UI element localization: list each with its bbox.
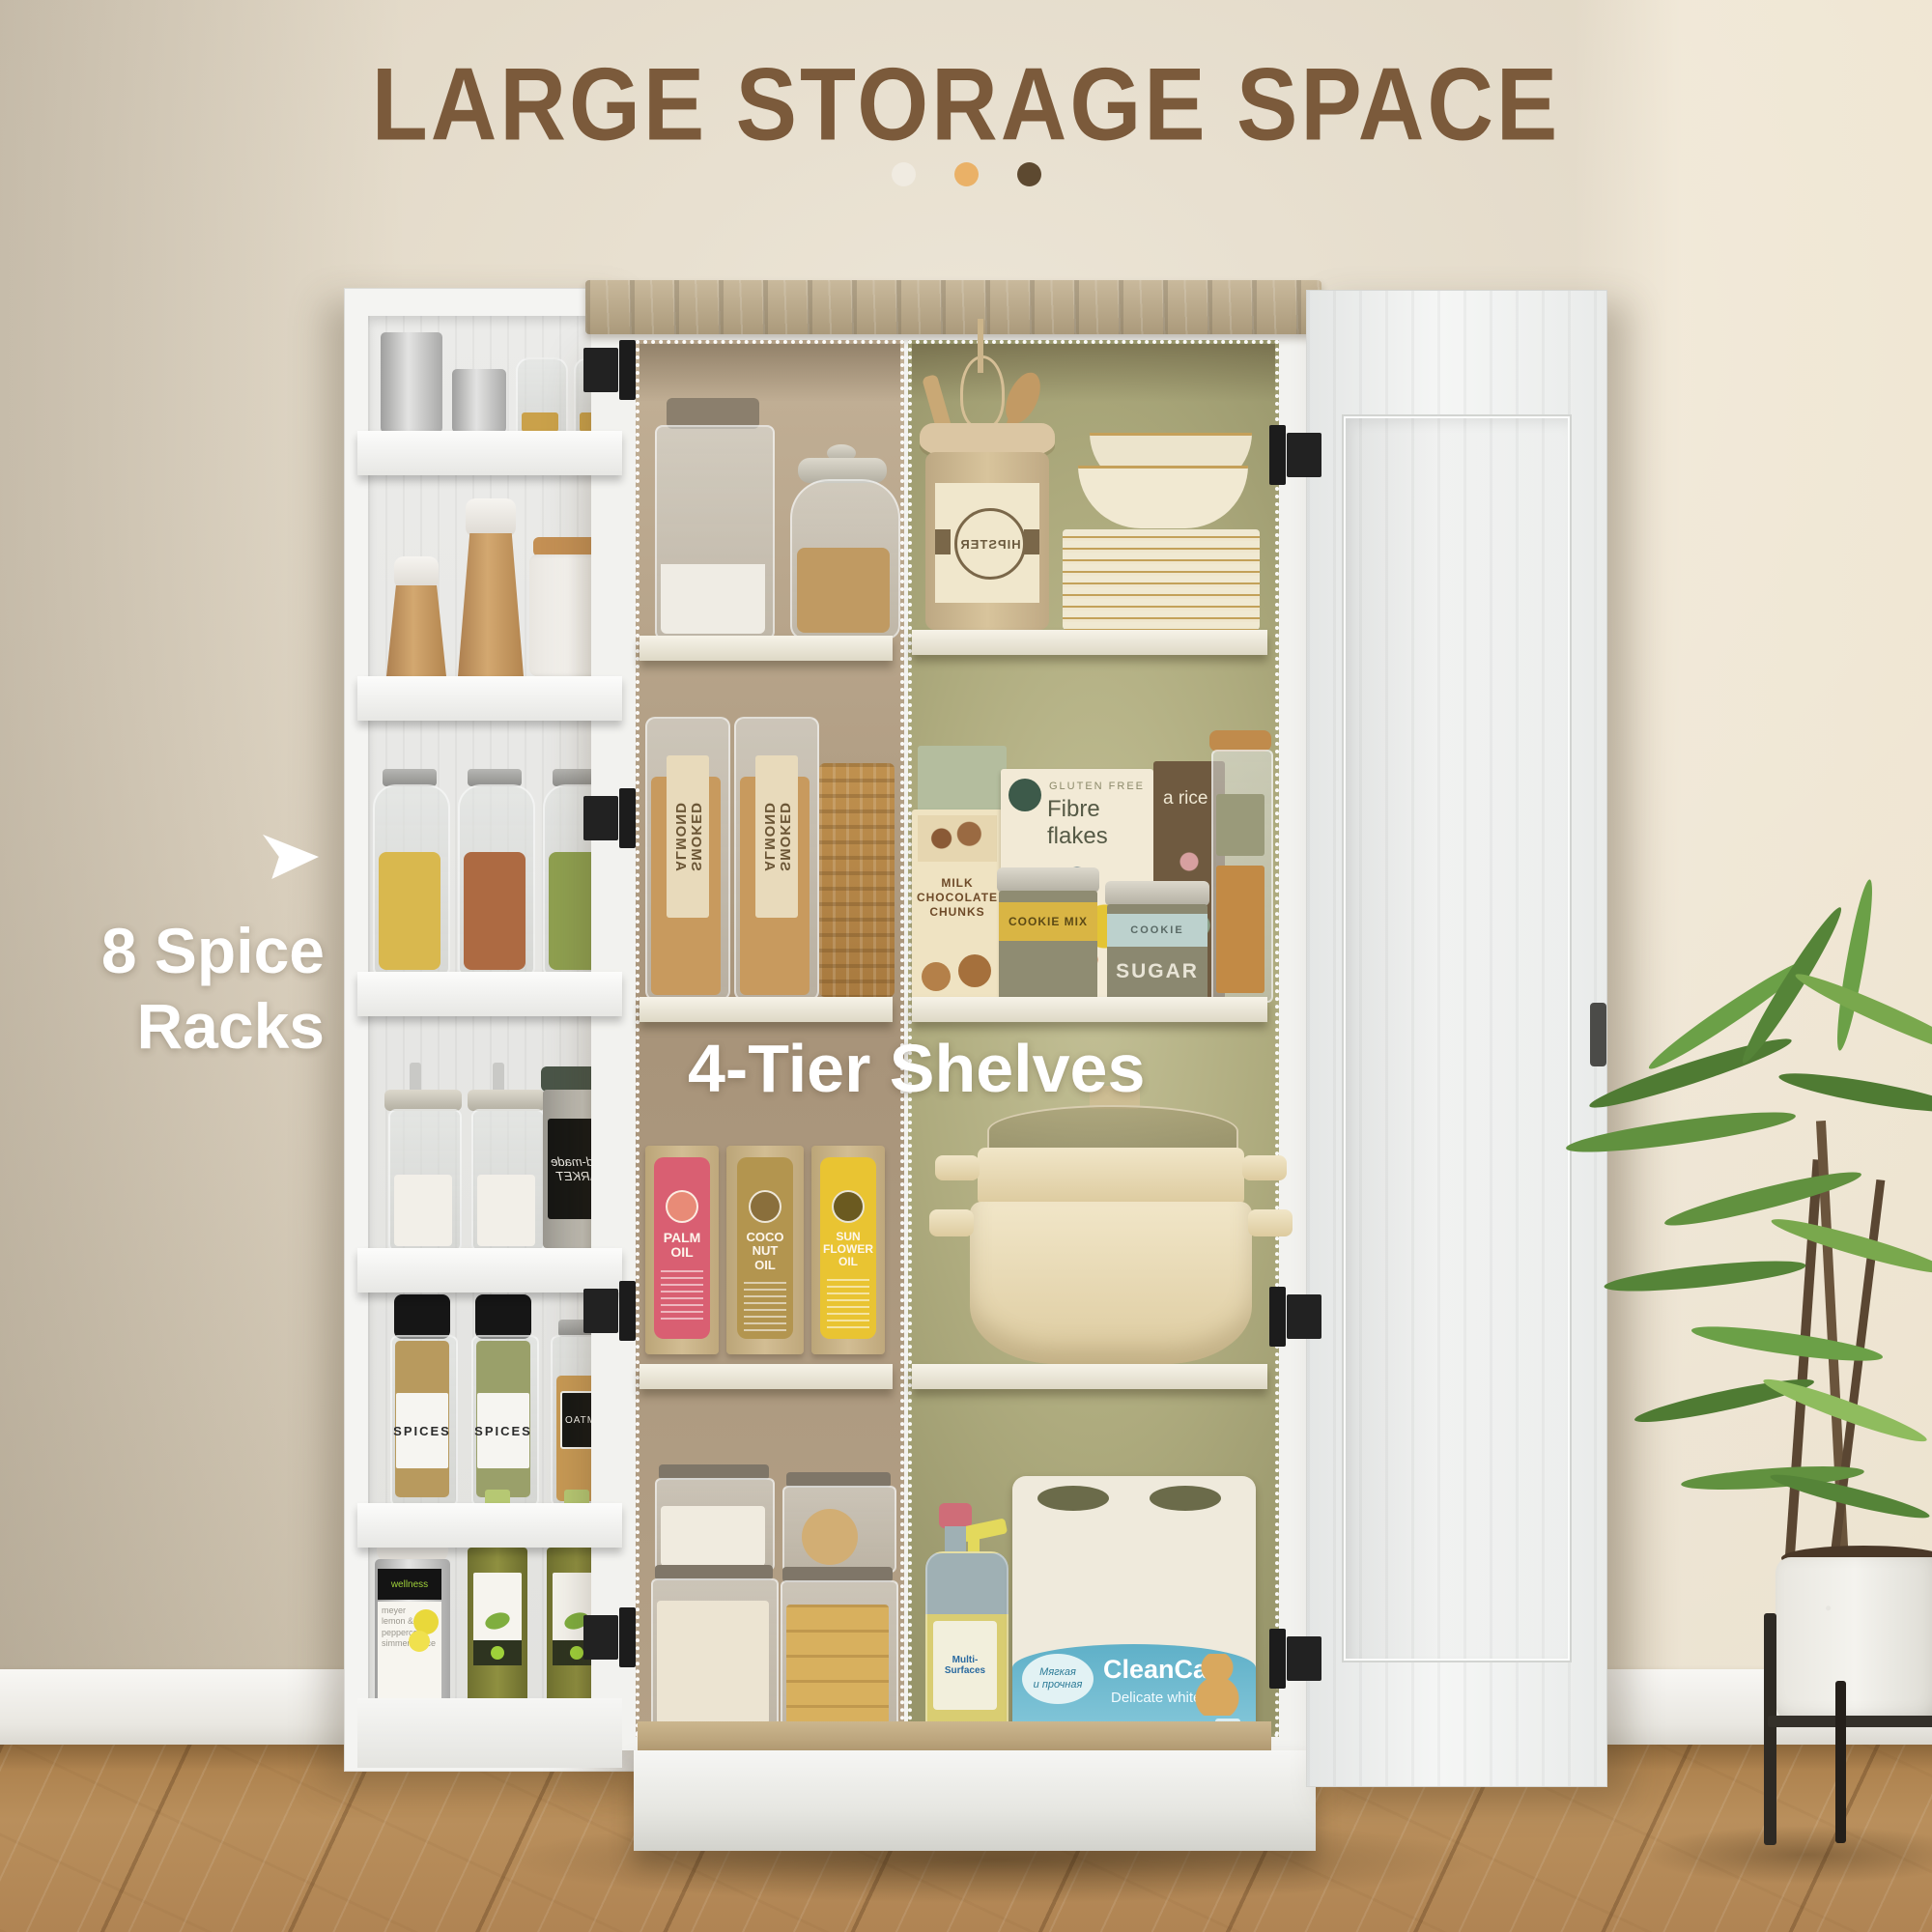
spices-text: SPICES bbox=[474, 1424, 532, 1438]
ribbon-left bbox=[935, 529, 951, 554]
towel-hole bbox=[1037, 1486, 1109, 1511]
cookie-fill bbox=[802, 1509, 858, 1565]
door-handle bbox=[1590, 1003, 1606, 1066]
hipster-badge: HIPSTER bbox=[954, 508, 1026, 580]
gluten-free-text: GLUTEN FREE bbox=[1049, 781, 1145, 792]
sugar-dispenser bbox=[388, 1109, 462, 1252]
ru-badge: Мягкая и прочная bbox=[1022, 1654, 1094, 1704]
pepper-mill-small bbox=[386, 585, 446, 676]
spice-shelf-lip bbox=[357, 431, 622, 475]
chocolate-box: MILK CHOCOLATE CHUNKS bbox=[912, 810, 1003, 1001]
spices-label: SPICES bbox=[396, 1393, 448, 1468]
label-dot bbox=[570, 1646, 583, 1660]
container-large-flour bbox=[651, 1578, 779, 1729]
palm-text: PALM OIL bbox=[664, 1231, 701, 1261]
olive-oil-body bbox=[468, 1548, 527, 1706]
flour-canister bbox=[655, 425, 775, 639]
palm-leaf bbox=[1690, 1320, 1884, 1368]
grinder-cap bbox=[394, 1294, 450, 1339]
grain-jar-lid bbox=[1209, 730, 1271, 752]
column-shade bbox=[639, 344, 900, 402]
pot-body bbox=[970, 1202, 1252, 1364]
pasta-jar-red bbox=[458, 784, 535, 976]
hipster-label: HIPSTER bbox=[935, 483, 1039, 603]
grinder-cap bbox=[475, 1294, 531, 1339]
hipster-jar: HIPSTER bbox=[925, 452, 1049, 630]
palm-icon bbox=[666, 1190, 698, 1223]
plant-stand-leg bbox=[1764, 1613, 1776, 1845]
chocolate-label: MILK CHOCOLATE CHUNKS bbox=[916, 866, 999, 929]
wellness-text: wellness bbox=[391, 1579, 428, 1590]
cookie-band: COOKIE bbox=[1107, 914, 1207, 947]
steel-canister-small bbox=[452, 369, 506, 433]
coconut-oil-label: COCO NUT OIL bbox=[737, 1157, 793, 1339]
sugar-dispenser bbox=[471, 1109, 545, 1252]
sauce-label: meyer lemon & peppercorn simmer sauce bbox=[378, 1602, 441, 1698]
oats-jar bbox=[790, 479, 900, 639]
accent-dots bbox=[0, 162, 1932, 186]
shelf-board bbox=[639, 1364, 893, 1389]
rice-text: a rice bbox=[1163, 788, 1207, 810]
grain-jar bbox=[1211, 750, 1273, 1003]
cookie-mix-tin: COOKIE MIX bbox=[997, 867, 1099, 1001]
wellness-band: wellness bbox=[378, 1569, 441, 1600]
planter-pot bbox=[1776, 1557, 1932, 1727]
pepper-mill-cap bbox=[466, 498, 516, 537]
sunflower-text: SUN FLOWER OIL bbox=[823, 1231, 873, 1269]
shelf-board bbox=[639, 636, 893, 661]
pasta-fill bbox=[464, 852, 526, 970]
palm-oil-label: PALM OIL bbox=[654, 1157, 710, 1339]
whisk-handle bbox=[978, 319, 983, 373]
cookie-text: COOKIE bbox=[1130, 924, 1183, 936]
cookie-art bbox=[922, 962, 951, 991]
ribbon-right bbox=[1024, 529, 1039, 554]
delicate-text: Delicate white bbox=[1111, 1690, 1201, 1706]
hinge-icon bbox=[583, 1281, 636, 1341]
plate-stack bbox=[1063, 529, 1260, 630]
dot-cream bbox=[892, 162, 916, 186]
ru-text: Мягкая и прочная bbox=[1034, 1666, 1083, 1691]
sunflower-oil-box: SUN FLOWER OIL bbox=[811, 1146, 885, 1354]
flour-fill bbox=[661, 564, 765, 634]
palm-leaf bbox=[1564, 1104, 1797, 1159]
cookie-art bbox=[958, 954, 991, 987]
towel-hole bbox=[1150, 1486, 1221, 1511]
label-fine-print bbox=[661, 1270, 703, 1322]
chocolate-text: MILK CHOCOLATE CHUNKS bbox=[917, 876, 998, 920]
spray-label: Multi-Surfaces bbox=[933, 1621, 997, 1710]
spice-door-bottom-frame bbox=[357, 1698, 622, 1768]
hinge-icon bbox=[1269, 1629, 1321, 1689]
shelf-board bbox=[912, 630, 1267, 655]
label-fine-print bbox=[827, 1279, 869, 1331]
sugar-fill bbox=[394, 1175, 452, 1246]
cookie-mix-band: COOKIE MIX bbox=[999, 902, 1097, 941]
almond-text: SMOKED ALMOND bbox=[672, 802, 703, 871]
sugar-text-wrap: SUGAR bbox=[1107, 951, 1207, 993]
pot-handle-left bbox=[935, 1155, 980, 1180]
spices-label: SPICES bbox=[477, 1393, 529, 1468]
puppy-art bbox=[1192, 1654, 1242, 1716]
spices-text: SPICES bbox=[393, 1424, 451, 1438]
coconut-text: COCO NUT OIL bbox=[747, 1231, 784, 1272]
palm-leaf bbox=[1633, 1372, 1816, 1429]
container-small-flour bbox=[655, 1478, 775, 1571]
pasta-fill bbox=[379, 852, 440, 970]
multi-surfaces-text: Multi-Surfaces bbox=[933, 1655, 997, 1676]
seed-fill bbox=[1216, 794, 1264, 856]
pasta-jar-yellow bbox=[373, 784, 450, 976]
palm-leaf bbox=[1603, 1255, 1806, 1297]
wicker-basket bbox=[819, 763, 895, 997]
rice-fill bbox=[657, 1601, 769, 1724]
spice-grinder: SPICES bbox=[471, 1335, 539, 1507]
hipster-text: HIPSTER bbox=[959, 537, 1020, 552]
spice-shelf-lip bbox=[357, 676, 622, 721]
almond-label: SMOKED ALMOND bbox=[755, 755, 798, 918]
spice-shelf-lip bbox=[357, 1248, 622, 1293]
pot-steamer bbox=[978, 1148, 1244, 1207]
almond-jar: SMOKED ALMOND bbox=[645, 717, 730, 1001]
hinge-icon bbox=[583, 788, 636, 848]
palm-leaf bbox=[1792, 966, 1932, 1063]
container-small-cookies bbox=[782, 1486, 896, 1573]
hinge-icon bbox=[1269, 425, 1321, 485]
product-scene: LARGE STORAGE SPACE h bbox=[0, 0, 1932, 1932]
coconut-oil-box: COCO NUT OIL bbox=[726, 1146, 804, 1354]
plant-stand-leg-back bbox=[1835, 1681, 1846, 1843]
dot-brown bbox=[1017, 162, 1041, 186]
pot-handle-right bbox=[1242, 1155, 1287, 1180]
tin-lid bbox=[1105, 881, 1209, 906]
tin-lid bbox=[997, 867, 1099, 893]
sugar-tin: COOKIE SUGAR bbox=[1105, 881, 1209, 1001]
pepper-mill-small-cap bbox=[394, 556, 439, 589]
grain-fill bbox=[1216, 866, 1264, 993]
hinge-icon bbox=[1269, 1287, 1321, 1347]
flour-fill bbox=[661, 1506, 765, 1566]
spice-shelf-lip bbox=[357, 972, 622, 1016]
lemon-art bbox=[409, 1631, 430, 1652]
shaker-fill bbox=[522, 412, 558, 432]
cabinet-top-board bbox=[585, 280, 1321, 334]
steel-canister bbox=[381, 332, 442, 433]
sugar-fill bbox=[477, 1175, 535, 1246]
pot-handle-right bbox=[1248, 1209, 1293, 1236]
label-dot bbox=[491, 1646, 504, 1660]
organic-logo bbox=[1009, 779, 1041, 811]
dot-orange bbox=[954, 162, 979, 186]
shelf-board bbox=[912, 1364, 1267, 1389]
shaker-jar bbox=[516, 357, 568, 437]
sauce-jar: wellness meyer lemon & peppercorn simmer… bbox=[375, 1559, 450, 1706]
cabinet-floor bbox=[638, 1721, 1271, 1750]
spice-shelf-lip bbox=[357, 1503, 622, 1548]
almond-text: SMOKED ALMOND bbox=[761, 802, 792, 871]
palm-leaf bbox=[1777, 1066, 1932, 1120]
tier-shelves-callout: 4-Tier Shelves bbox=[688, 1030, 1145, 1107]
potted-plant bbox=[1546, 947, 1932, 1874]
sunflower-icon bbox=[832, 1190, 865, 1223]
sunflower-oil-label: SUN FLOWER OIL bbox=[820, 1157, 876, 1339]
pot-handle-left bbox=[929, 1209, 974, 1236]
shelf-board bbox=[639, 997, 893, 1022]
container-wafers bbox=[781, 1580, 898, 1729]
spray-bottle-body: Multi-Surfaces bbox=[925, 1551, 1009, 1735]
dispenser-lid bbox=[468, 1090, 545, 1111]
wafer-fill bbox=[786, 1605, 889, 1724]
cookie-mix-text: COOKIE MIX bbox=[1009, 915, 1088, 928]
palm-oil-box: PALM OIL bbox=[645, 1146, 719, 1354]
spice-grinder: SPICES bbox=[390, 1335, 458, 1507]
hinge-icon bbox=[583, 1607, 636, 1667]
hinge-icon bbox=[583, 340, 636, 400]
door-recessed-panel bbox=[1342, 414, 1572, 1662]
palm-leaf bbox=[1662, 1164, 1863, 1234]
oats-fill bbox=[797, 548, 890, 633]
towel-pack: Мягкая и прочная CleanCare Delicate whit… bbox=[1012, 1476, 1256, 1737]
basil-art bbox=[483, 1609, 512, 1632]
chocolate-art-top bbox=[918, 815, 997, 862]
label-fine-print bbox=[744, 1282, 786, 1334]
plant-stand-crossbar bbox=[1768, 1716, 1932, 1727]
page-title: LARGE STORAGE SPACE bbox=[0, 46, 1932, 164]
spice-racks-callout: 8 Spice Racks bbox=[39, 914, 325, 1065]
oil-label bbox=[473, 1573, 522, 1665]
almond-jar: SMOKED ALMOND bbox=[734, 717, 819, 1001]
spray-cap bbox=[939, 1503, 972, 1528]
sugar-text: SUGAR bbox=[1116, 960, 1199, 983]
coconut-icon bbox=[749, 1190, 781, 1223]
dispenser-lid bbox=[384, 1090, 462, 1111]
cabinet-plinth bbox=[634, 1750, 1316, 1851]
almond-label: SMOKED ALMOND bbox=[667, 755, 709, 918]
shelf-board bbox=[912, 997, 1267, 1022]
